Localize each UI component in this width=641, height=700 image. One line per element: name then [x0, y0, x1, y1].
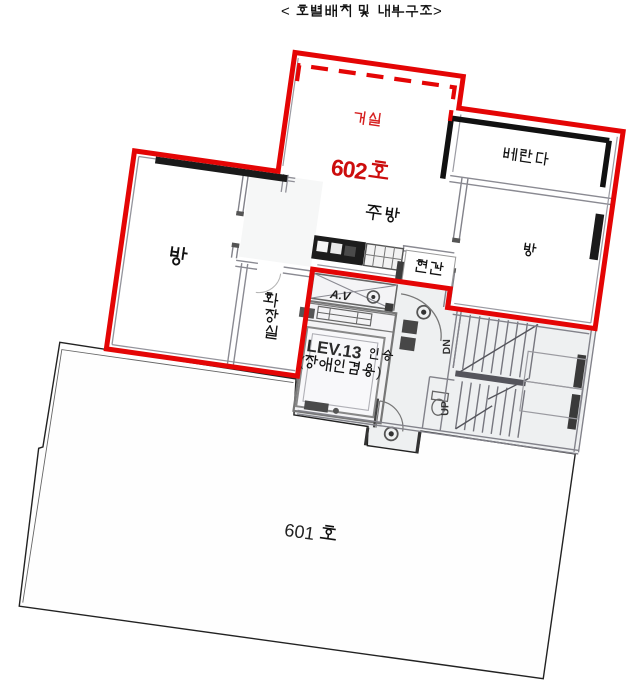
- svg-text:UP: UP: [439, 401, 451, 416]
- svg-text:<: <: [281, 3, 290, 20]
- svg-text:>: >: [433, 3, 442, 20]
- svg-text:601: 601: [283, 520, 316, 544]
- svg-text:DN: DN: [441, 339, 453, 354]
- svg-text:602: 602: [329, 154, 368, 185]
